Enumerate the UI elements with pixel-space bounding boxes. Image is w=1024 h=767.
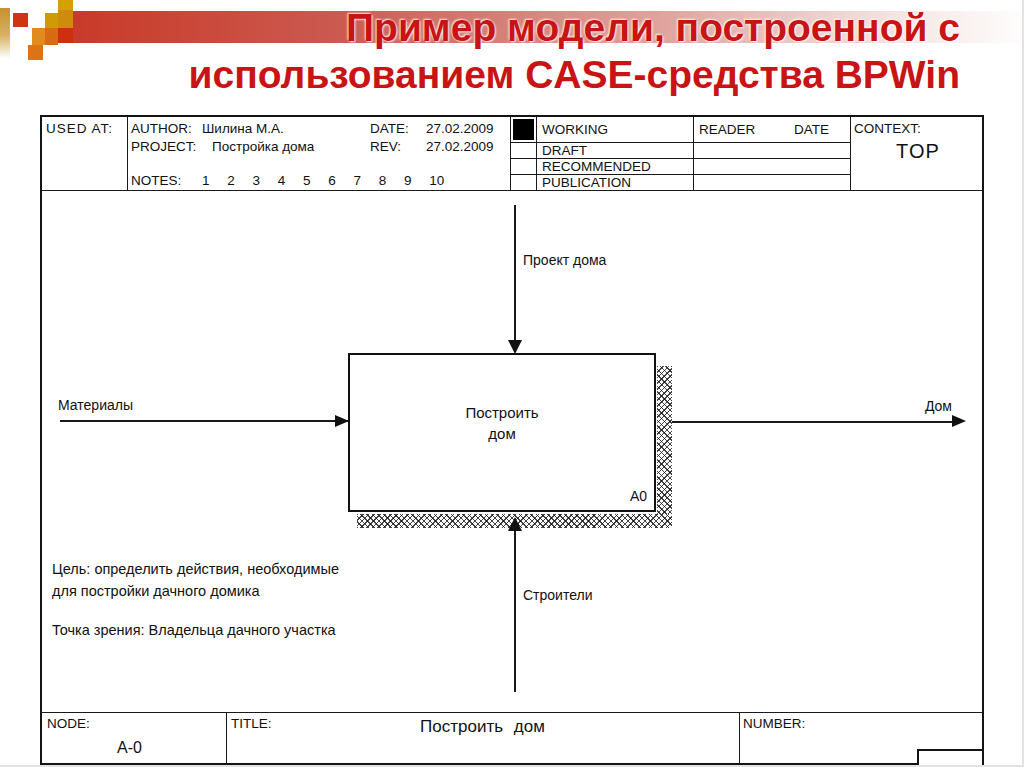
input-arrow-line — [60, 420, 348, 422]
title-value: Построить дом — [226, 717, 739, 737]
reader-date-column-label: DATE — [794, 122, 829, 137]
corner-square-orange-a — [32, 28, 45, 45]
activity-name-line1: Построить — [465, 402, 538, 423]
input-arrow-label: Материалы — [58, 397, 133, 413]
slide-title-line2: использованием CASE-средства BPWin — [60, 51, 960, 98]
divider-reader — [693, 117, 694, 191]
output-arrow-label: Дом — [880, 398, 952, 414]
mechanism-arrowhead-icon — [508, 517, 522, 531]
node-label: NODE: — [47, 716, 90, 731]
rev-label: REV: — [370, 139, 401, 154]
status-publication-label: PUBLICATION — [542, 175, 631, 190]
control-arrow-line — [514, 205, 516, 352]
activity-name: Построить дом — [465, 402, 538, 444]
corner-square-gold-left — [45, 13, 58, 28]
divider-used-at — [127, 117, 128, 191]
rev-value: 27.02.2009 — [426, 139, 494, 154]
status-working-label: WORKING — [542, 122, 608, 137]
output-arrow-line — [658, 421, 954, 423]
slide-title: Пример модели, построенной с использован… — [60, 4, 960, 98]
reader-column-label: READER — [699, 122, 755, 137]
status-draft-label: DRAFT — [542, 143, 587, 158]
slide-title-line1: Пример модели, построенной с — [60, 4, 960, 51]
control-arrow-label: Проект дома — [523, 252, 606, 268]
input-arrowhead-icon — [335, 415, 349, 427]
idef0-frame: USED AT: AUTHOR: Шилина М.А. DATE: 27.02… — [40, 115, 984, 765]
corner-square-orange-small — [28, 45, 43, 60]
notes-values: 1 2 3 4 5 6 7 8 9 10 — [202, 173, 444, 188]
context-label: CONTEXT: — [854, 121, 921, 136]
project-label: PROJECT: — [131, 139, 196, 154]
divider-status-left — [510, 117, 511, 191]
context-value: TOP — [850, 140, 986, 163]
mechanism-arrow-label: Строители — [523, 587, 592, 603]
corner-gradient-strip — [0, 8, 10, 58]
control-arrowhead-icon — [508, 340, 522, 354]
status-checkbox-working-checked-icon — [513, 119, 534, 140]
output-arrowhead-icon — [952, 415, 966, 427]
activity-box: Построить дом A0 — [348, 353, 656, 512]
activity-name-line2: дом — [465, 423, 538, 444]
number-corner-tab — [917, 749, 984, 767]
corner-square-orange-b — [45, 28, 58, 45]
date-label: DATE: — [370, 121, 409, 136]
date-value: 27.02.2009 — [426, 121, 494, 136]
project-value: Постройка дома — [212, 139, 314, 154]
node-value: A-0 — [117, 739, 142, 757]
notes-label: NOTES: — [131, 173, 181, 188]
mechanism-arrow-line — [514, 520, 516, 692]
activity-code: A0 — [630, 486, 647, 507]
slide: Пример модели, построенной с использован… — [0, 0, 1024, 767]
corner-square-red — [13, 13, 28, 27]
used-at-label: USED AT: — [46, 121, 113, 136]
author-value: Шилина М.А. — [202, 121, 284, 136]
status-recommended-label: RECOMMENDED — [542, 159, 651, 174]
goal-text-line1: Цель: определить действия, необходимые — [52, 561, 339, 577]
viewpoint-text: Точка зрения: Владельца дачного участка — [52, 622, 336, 638]
activity-shadow-right — [657, 366, 672, 528]
divider-checkbox — [536, 117, 537, 191]
divider-number — [739, 712, 740, 763]
number-label: NUMBER: — [743, 716, 805, 731]
goal-text-line2: для постройки дачного домика — [52, 583, 260, 599]
author-label: AUTHOR: — [131, 121, 192, 136]
